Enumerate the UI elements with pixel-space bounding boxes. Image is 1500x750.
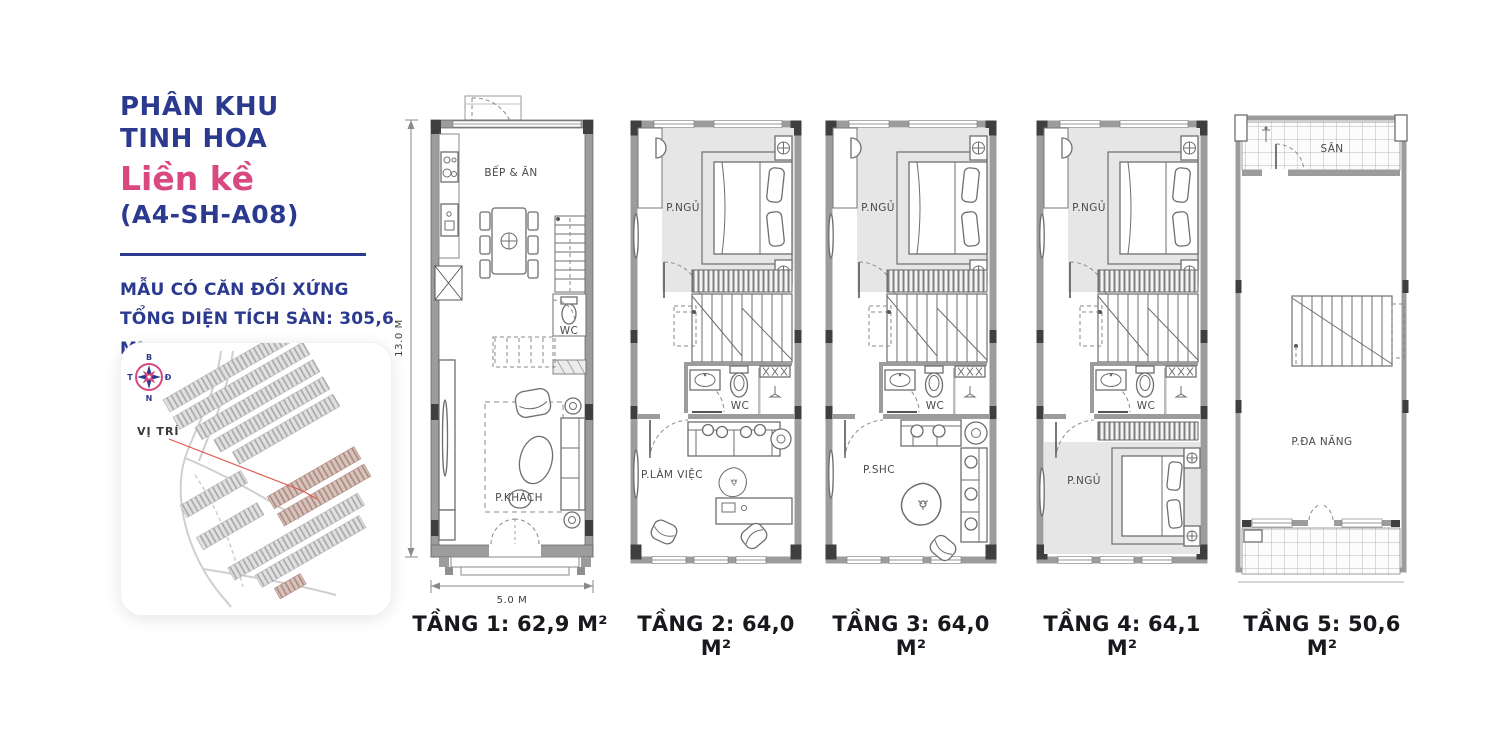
floor-plan-2: P.NGỦ WC P.LÀM VIỆC TẦNG 2: 64,0 M² bbox=[626, 112, 806, 571]
note-symmetry: MẪU CÓ CĂN ĐỐI XỨNG bbox=[120, 276, 398, 306]
location-label: VỊ TRÍ bbox=[137, 425, 180, 438]
wardrobe bbox=[439, 360, 455, 540]
room-label-living: P.KHÁCH bbox=[495, 491, 543, 504]
side-window bbox=[829, 450, 833, 498]
room-label-kitchen-dining: BẾP & ĂN bbox=[484, 165, 537, 179]
staircase bbox=[555, 216, 585, 292]
room-label-wc: WC bbox=[731, 400, 750, 412]
floor-2-caption: TẦNG 2: 64,0 M² bbox=[626, 612, 806, 660]
room-label-bedroom: P.NGỦ bbox=[666, 200, 700, 214]
compass-east-label: Đ bbox=[165, 373, 172, 382]
staircase bbox=[1292, 296, 1404, 366]
room-label-bedroom: P.NGỦ bbox=[1072, 200, 1106, 214]
entrance-double-door bbox=[489, 519, 541, 558]
floor-plan-3: P.NGỦ WC P.SHC TẦNG 3: 64,0 M² bbox=[821, 112, 1001, 571]
subdivision-title-line1: PHÂN KHU bbox=[120, 92, 398, 124]
divider-line bbox=[120, 253, 366, 256]
room-label-bedroom: P.NGỦ bbox=[861, 200, 895, 214]
dining-table bbox=[480, 208, 538, 278]
porch-steps bbox=[439, 557, 591, 575]
room-label-wc: WC bbox=[926, 400, 945, 412]
living-room-furniture bbox=[485, 387, 585, 528]
floor-plan-5-drawing: SÂN P.ĐA NĂNG bbox=[1232, 100, 1412, 590]
wc-area: WC bbox=[553, 294, 586, 374]
room-label-bedroom-2: P.NGỦ bbox=[1067, 473, 1101, 487]
kitchen-fixtures bbox=[435, 134, 462, 300]
subdivision-title-line2: TINH HOA bbox=[120, 124, 398, 156]
compass-rose: B N T Đ bbox=[127, 353, 171, 403]
room-label-terrace: SÂN bbox=[1320, 142, 1343, 155]
compass-north-label: B bbox=[146, 353, 152, 362]
dimension-depth: 13.0 M bbox=[395, 120, 418, 557]
room-label-wc: WC bbox=[1137, 400, 1156, 412]
room-label-family: P.SHC bbox=[863, 464, 895, 476]
floor-plan-1: 13.0 M bbox=[395, 88, 625, 612]
floor-5-caption: TẦNG 5: 50,6 M² bbox=[1232, 612, 1412, 660]
dimension-width: 5.0 M bbox=[431, 580, 593, 606]
dimension-width-label: 5.0 M bbox=[497, 595, 528, 606]
floor-plan-4-drawing: P.NGỦ WC P.NGỦ bbox=[1032, 112, 1212, 567]
floor-4-caption: TẦNG 4: 64,1 M² bbox=[1032, 612, 1212, 660]
subdivision-title: PHÂN KHU TINH HOA bbox=[120, 92, 398, 155]
room-label-office: P.LÀM VIỆC bbox=[641, 468, 703, 481]
floor-3-caption: TẦNG 3: 64,0 M² bbox=[821, 612, 1001, 660]
compass-west-label: T bbox=[127, 373, 133, 382]
unit-code: (A4-SH-A08) bbox=[120, 200, 398, 229]
floor-plan-5: SÂN P.ĐA NĂNG bbox=[1232, 100, 1412, 594]
room-label-wc: WC bbox=[560, 325, 579, 337]
entry-stoop bbox=[465, 96, 521, 121]
compass-south-label: N bbox=[146, 394, 153, 403]
side-window bbox=[634, 450, 638, 498]
floor-plan-1-drawing: 13.0 M bbox=[395, 88, 625, 608]
floor-1-caption: TẦNG 1: 62,9 M² bbox=[395, 612, 625, 636]
info-panel: PHÂN KHU TINH HOA Liền kề (A4-SH-A08) MẪ… bbox=[120, 92, 398, 365]
floor-plan-2-drawing: P.NGỦ WC P.LÀM VIỆC bbox=[626, 112, 806, 567]
floor-plan-4: P.NGỦ WC P.NGỦ bbox=[1032, 112, 1212, 571]
room-label-multipurpose: P.ĐA NĂNG bbox=[1291, 435, 1352, 448]
site-map-card: B N T Đ VỊ TRÍ bbox=[120, 342, 392, 616]
map-building-blocks bbox=[128, 343, 389, 613]
dimension-depth-label: 13.0 M bbox=[395, 319, 405, 357]
lower-stair-flight-dashed bbox=[493, 337, 555, 367]
site-map: B N T Đ VỊ TRÍ bbox=[121, 343, 389, 613]
product-type-title: Liền kề bbox=[120, 161, 398, 197]
floor-plan-3-drawing: P.NGỦ WC P.SHC bbox=[821, 112, 1001, 567]
